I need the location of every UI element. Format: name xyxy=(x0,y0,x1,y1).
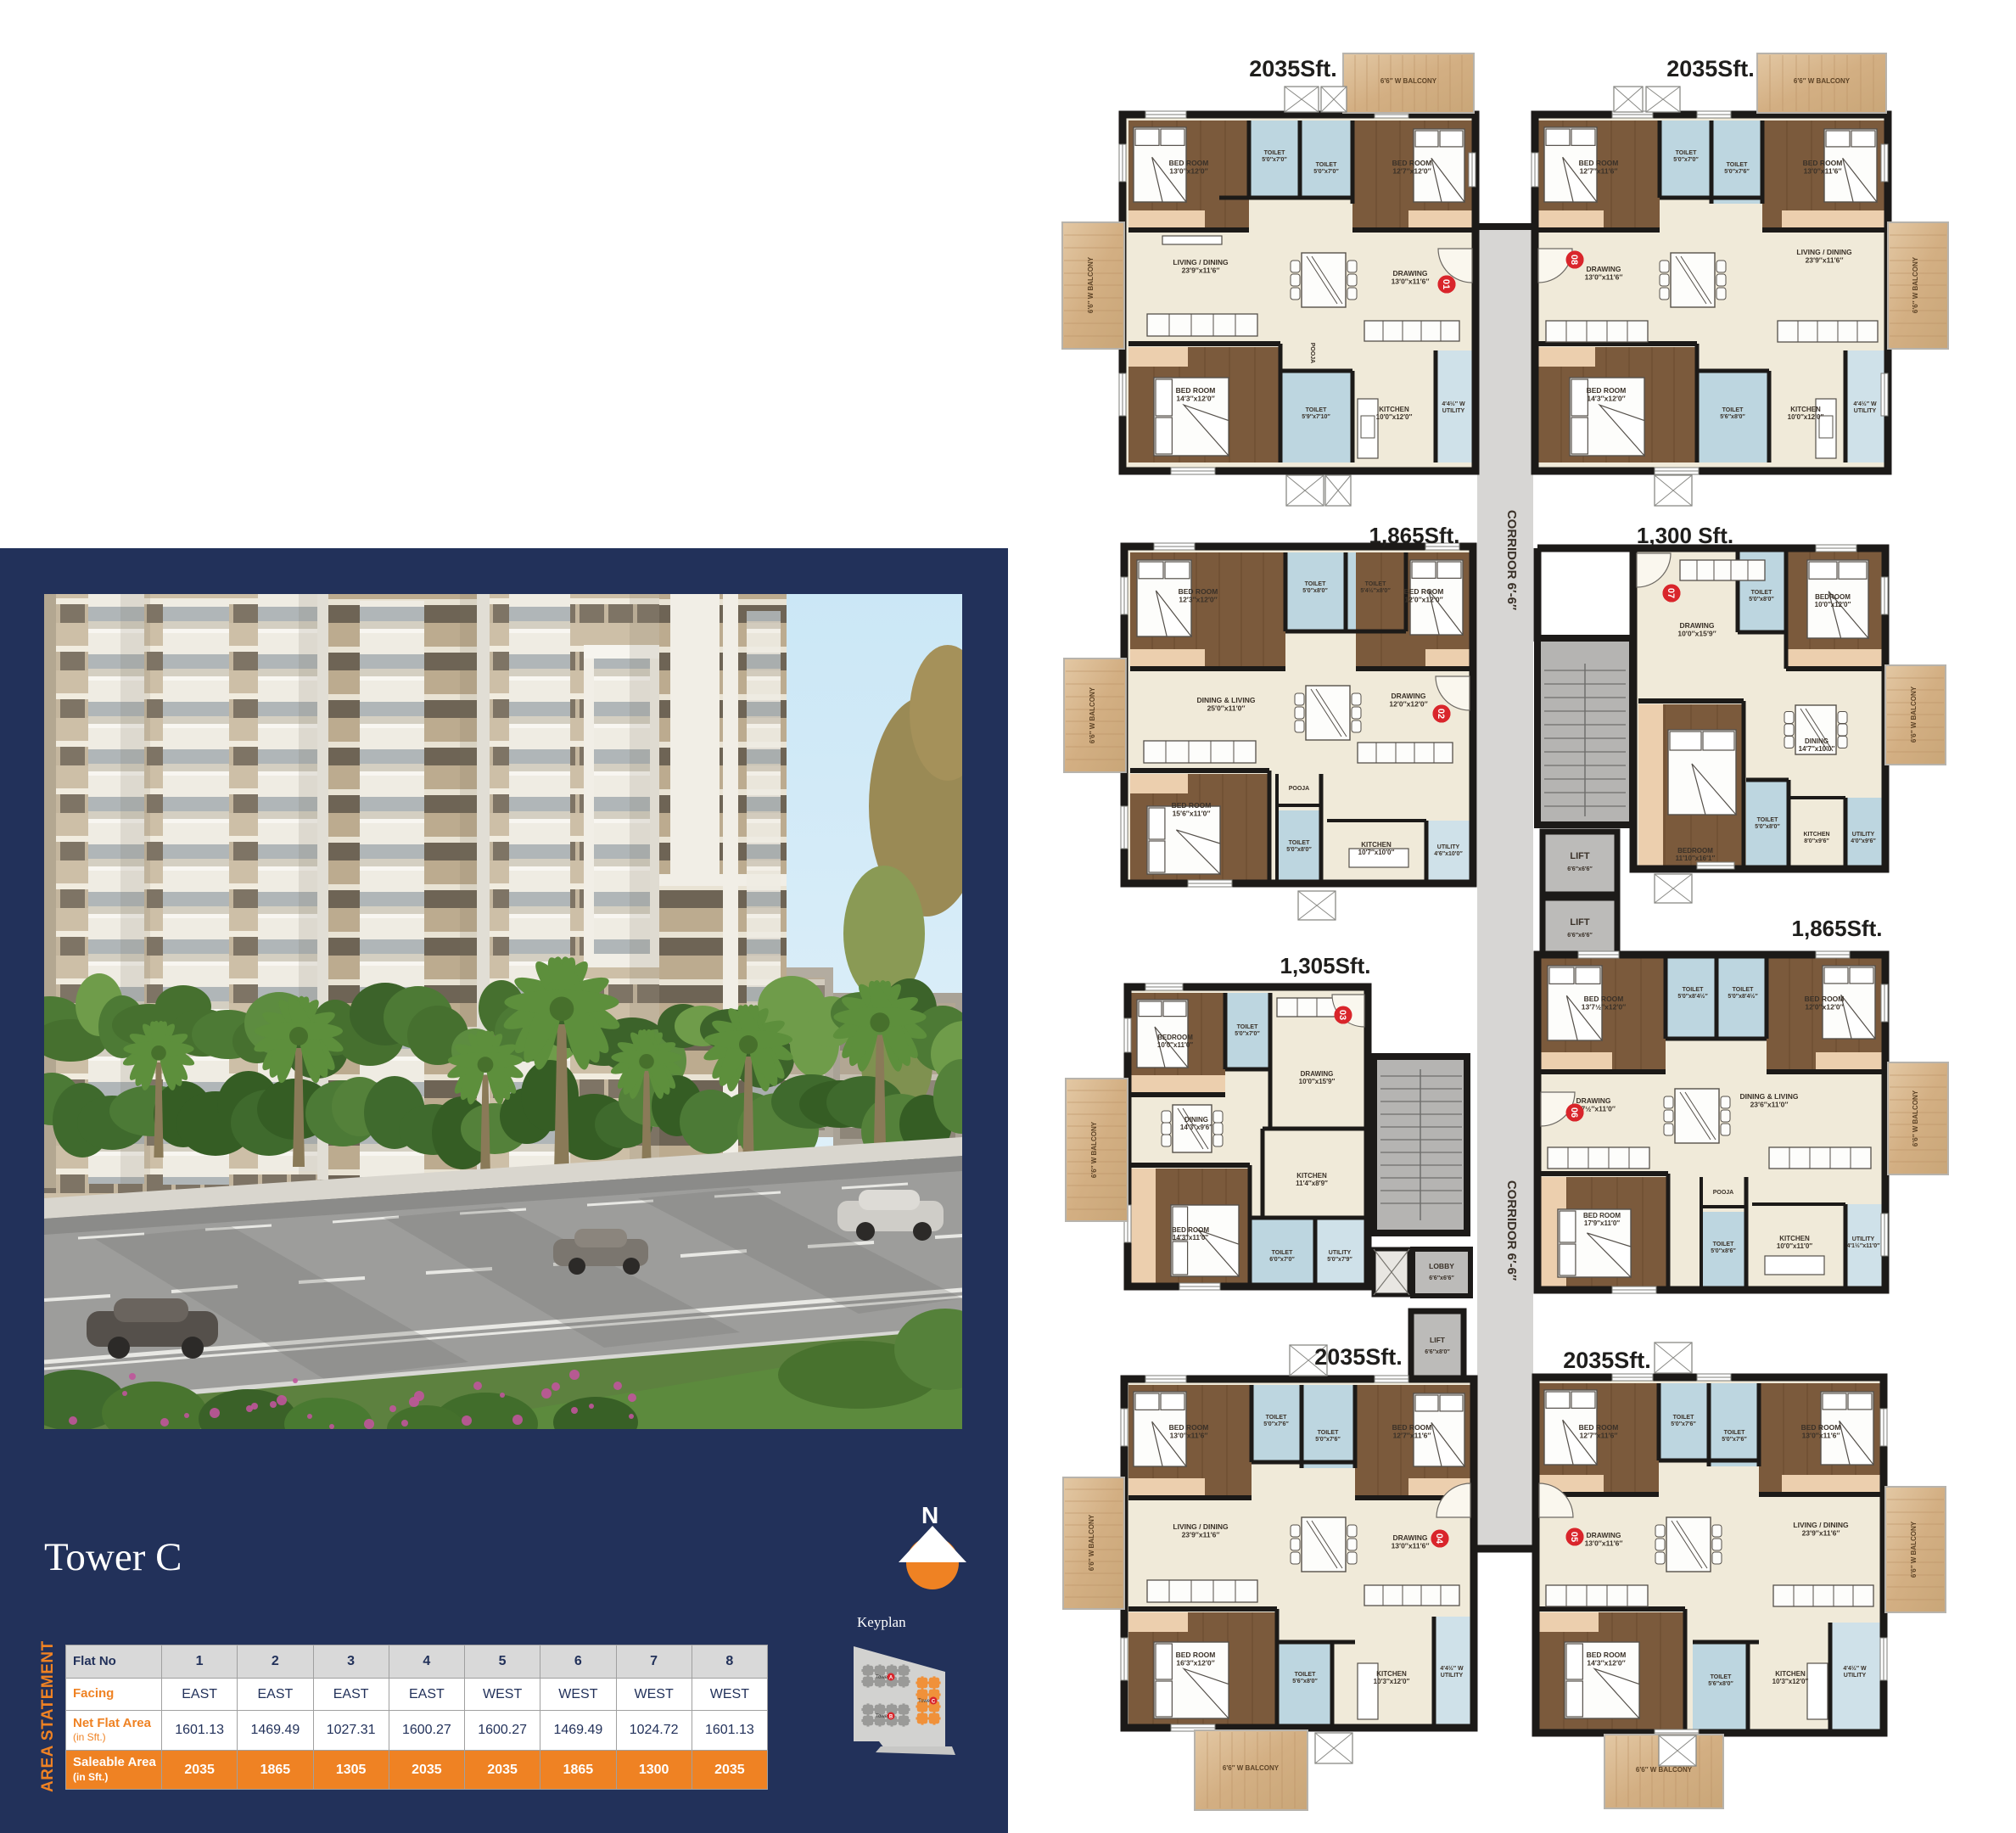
svg-text:BED ROOM13′0″x11′6″: BED ROOM13′0″x11′6″ xyxy=(1803,159,1843,176)
svg-text:BED ROOM12′0″x12′0″: BED ROOM12′0″x12′0″ xyxy=(1805,995,1845,1012)
svg-text:POOJA: POOJA xyxy=(1289,786,1310,792)
svg-text:TOILET5′6″x8′0″: TOILET5′6″x8′0″ xyxy=(1720,407,1745,420)
svg-text:KITCHEN10′3″x12′0″: KITCHEN10′3″x12′0″ xyxy=(1374,1670,1410,1685)
svg-text:1,300 Sft.: 1,300 Sft. xyxy=(1637,523,1733,548)
svg-text:BEDROOM10′0″x12′0″: BEDROOM10′0″x12′0″ xyxy=(1815,593,1851,608)
svg-text:BED ROOM12′7″x12′0″: BED ROOM12′7″x12′0″ xyxy=(1392,159,1432,176)
svg-text:LIFT: LIFT xyxy=(1430,1336,1446,1344)
svg-text:1,305Sft.: 1,305Sft. xyxy=(1280,953,1371,978)
svg-text:TOILET5′0″x8′0″: TOILET5′0″x8′0″ xyxy=(1302,581,1328,594)
svg-text:BEDROOM10′0″x11′0″: BEDROOM10′0″x11′0″ xyxy=(1157,1034,1193,1049)
svg-text:TOILET5′0″x7′6″: TOILET5′0″x7′6″ xyxy=(1315,1430,1341,1443)
svg-text:6′6″ W BALCONY: 6′6″ W BALCONY xyxy=(1089,687,1096,743)
svg-text:CORRIDOR 6′-6″: CORRIDOR 6′-6″ xyxy=(1504,1180,1519,1281)
svg-text:6′6″ W BALCONY: 6′6″ W BALCONY xyxy=(1912,256,1919,313)
svg-text:TOILET5′0″x7′6″: TOILET5′0″x7′6″ xyxy=(1263,1415,1289,1427)
svg-text:BED ROOM14′3″x11′0″: BED ROOM14′3″x11′0″ xyxy=(1172,1226,1209,1242)
svg-text:BED ROOM14′3″x12′0″: BED ROOM14′3″x12′0″ xyxy=(1176,386,1216,403)
svg-text:POOJA: POOJA xyxy=(1713,1190,1734,1196)
svg-text:UTILITY5′0″x7′9″: UTILITY5′0″x7′9″ xyxy=(1327,1250,1352,1263)
svg-text:BED ROOM14′3″x12′0″: BED ROOM14′3″x12′0″ xyxy=(1587,386,1627,403)
svg-text:TOILET5′0″x7′0″: TOILET5′0″x7′0″ xyxy=(1313,162,1339,175)
svg-text:2035Sft.: 2035Sft. xyxy=(1666,56,1755,81)
svg-text:B: B xyxy=(889,1715,893,1720)
svg-text:KITCHEN11′4″x8′9″: KITCHEN11′4″x8′9″ xyxy=(1296,1172,1328,1187)
svg-text:02: 02 xyxy=(1436,709,1446,719)
svg-text:TOILET6′0″x7′0″: TOILET6′0″x7′0″ xyxy=(1269,1250,1295,1263)
svg-text:TOILET5′0″x8′0″: TOILET5′0″x8′0″ xyxy=(1286,840,1312,853)
svg-text:BED ROOM12′7″x11′6″: BED ROOM12′7″x11′6″ xyxy=(1392,1423,1432,1440)
svg-text:TOILET5′0″x8′0″: TOILET5′0″x8′0″ xyxy=(1755,817,1780,830)
svg-text:TOILET5′0″x7′0″: TOILET5′0″x7′0″ xyxy=(1262,150,1287,163)
svg-text:05: 05 xyxy=(1569,1532,1579,1542)
svg-text:6′6″x6′6″: 6′6″x6′6″ xyxy=(1567,866,1593,872)
svg-text:06: 06 xyxy=(1569,1107,1579,1118)
svg-text:6′6″ W BALCONY: 6′6″ W BALCONY xyxy=(1380,77,1437,85)
svg-text:6′6″ W BALCONY: 6′6″ W BALCONY xyxy=(1910,686,1918,743)
svg-text:POOJA: POOJA xyxy=(1309,343,1315,364)
svg-text:BED ROOM13′0″x11′6″: BED ROOM13′0″x11′6″ xyxy=(1169,1423,1209,1440)
svg-text:6′6″x8′0″: 6′6″x8′0″ xyxy=(1425,1349,1450,1355)
svg-text:6′6″x6′6″: 6′6″x6′6″ xyxy=(1429,1275,1454,1281)
svg-text:6′6″ W BALCONY: 6′6″ W BALCONY xyxy=(1912,1090,1919,1146)
svg-text:03: 03 xyxy=(1337,1010,1347,1020)
svg-text:A: A xyxy=(889,1676,893,1681)
svg-text:BED ROOM14′3″x12′0″: BED ROOM14′3″x12′0″ xyxy=(1587,1651,1627,1668)
svg-text:TOILET5′0″x7′6″: TOILET5′0″x7′6″ xyxy=(1671,1415,1696,1427)
svg-text:6′6″ W BALCONY: 6′6″ W BALCONY xyxy=(1910,1521,1918,1578)
svg-text:TOILET5′0″x8′0″: TOILET5′0″x8′0″ xyxy=(1749,590,1774,603)
svg-text:TOILET5′0″x7′6″: TOILET5′0″x7′6″ xyxy=(1722,1430,1747,1443)
svg-text:DRAWING12′0″x12′0″: DRAWING12′0″x12′0″ xyxy=(1389,692,1427,709)
svg-text:C: C xyxy=(932,1700,936,1705)
svg-text:DRAWING13′0″x11′6″: DRAWING13′0″x11′6″ xyxy=(1392,269,1430,286)
svg-text:DRAWING10′0″x15′9″: DRAWING10′0″x15′9″ xyxy=(1299,1070,1336,1085)
svg-text:1,865Sft.: 1,865Sft. xyxy=(1792,916,1883,941)
svg-text:6′6″ W BALCONY: 6′6″ W BALCONY xyxy=(1090,1121,1098,1178)
svg-text:DRAWING13′0″x11′6″: DRAWING13′0″x11′6″ xyxy=(1392,1533,1430,1550)
svg-text:BED ROOM12′0″x12′0″: BED ROOM12′0″x12′0″ xyxy=(1404,587,1444,604)
svg-text:BED ROOM12′3″x12′0″: BED ROOM12′3″x12′0″ xyxy=(1179,587,1218,604)
svg-text:BED ROOM16′3″x12′0″: BED ROOM16′3″x12′0″ xyxy=(1176,1651,1216,1668)
svg-text:BEDROOM11′10″x16′1″: BEDROOM11′10″x16′1″ xyxy=(1676,847,1716,862)
svg-text:BED ROOM15′6″x11′0″: BED ROOM15′6″x11′0″ xyxy=(1172,801,1212,818)
svg-text:TOILET5′6″x8′0″: TOILET5′6″x8′0″ xyxy=(1292,1672,1318,1684)
svg-text:6′6″ W BALCONY: 6′6″ W BALCONY xyxy=(1088,1514,1095,1571)
svg-text:BED ROOM12′7″x11′6″: BED ROOM12′7″x11′6″ xyxy=(1579,159,1619,176)
svg-text:2035Sft.: 2035Sft. xyxy=(1563,1348,1651,1373)
svg-text:DINING14′3″x9′6″: DINING14′3″x9′6″ xyxy=(1180,1116,1212,1131)
svg-text:1,865Sft.: 1,865Sft. xyxy=(1369,523,1460,548)
svg-text:TOILET5′0″x7′0″: TOILET5′0″x7′0″ xyxy=(1673,150,1699,163)
svg-text:DRAWING10′0″x15′9″: DRAWING10′0″x15′9″ xyxy=(1677,621,1716,638)
svg-text:BED ROOM12′7″x11′6″: BED ROOM12′7″x11′6″ xyxy=(1579,1423,1619,1440)
svg-text:CORRIDOR 6′-6″: CORRIDOR 6′-6″ xyxy=(1504,510,1519,610)
svg-text:KITCHEN8′0″x9′6″: KITCHEN8′0″x9′6″ xyxy=(1803,832,1829,844)
svg-text:UTILITY4′0″x9′6″: UTILITY4′0″x9′6″ xyxy=(1851,832,1876,844)
svg-text:TOILET5′9″x7′10″: TOILET5′9″x7′10″ xyxy=(1302,407,1330,420)
svg-text:KITCHEN10′3″x12′0″: KITCHEN10′3″x12′0″ xyxy=(1772,1670,1809,1685)
svg-text:TOILET5′0″x7′6″: TOILET5′0″x7′6″ xyxy=(1724,162,1750,175)
svg-text:01: 01 xyxy=(1441,279,1451,289)
svg-text:6′6″ W BALCONY: 6′6″ W BALCONY xyxy=(1636,1766,1693,1774)
svg-text:07: 07 xyxy=(1666,588,1676,598)
svg-text:04: 04 xyxy=(1434,1533,1444,1544)
svg-text:TOILET5′0″x8′6″: TOILET5′0″x8′6″ xyxy=(1711,1242,1736,1254)
svg-text:TOILET5′0″x7′0″: TOILET5′0″x7′0″ xyxy=(1235,1024,1260,1037)
svg-text:BED ROOM13′0″x12′0″: BED ROOM13′0″x12′0″ xyxy=(1169,159,1209,176)
svg-text:6′6″ W BALCONY: 6′6″ W BALCONY xyxy=(1794,77,1851,85)
svg-text:KITCHEN10′0″x12′0″: KITCHEN10′0″x12′0″ xyxy=(1376,406,1413,421)
svg-text:2035Sft.: 2035Sft. xyxy=(1249,56,1337,81)
svg-text:UTILITY4′6″x10′0″: UTILITY4′6″x10′0″ xyxy=(1434,844,1463,857)
svg-text:TOILET5′6″x8′0″: TOILET5′6″x8′0″ xyxy=(1708,1674,1733,1687)
svg-text:KITCHEN10′0″x11′0″: KITCHEN10′0″x11′0″ xyxy=(1777,1235,1812,1250)
svg-text:DRAWING13′0″x11′6″: DRAWING13′0″x11′6″ xyxy=(1585,265,1623,282)
svg-text:KITCHEN10′0″x12′0″: KITCHEN10′0″x12′0″ xyxy=(1788,406,1824,421)
svg-text:LIFT: LIFT xyxy=(1570,917,1589,928)
svg-text:BED ROOM17′9″x11′0″: BED ROOM17′9″x11′0″ xyxy=(1583,1212,1621,1227)
svg-text:DRAWING13′0″x11′6″: DRAWING13′0″x11′6″ xyxy=(1585,1531,1623,1548)
svg-text:LOBBY: LOBBY xyxy=(1429,1262,1454,1270)
svg-text:BED ROOM13′7½″x12′0″: BED ROOM13′7½″x12′0″ xyxy=(1582,995,1626,1012)
svg-text:6′6″x6′6″: 6′6″x6′6″ xyxy=(1567,933,1593,939)
svg-text:2035Sft.: 2035Sft. xyxy=(1314,1344,1403,1370)
svg-text:08: 08 xyxy=(1569,255,1579,265)
svg-text:BED ROOM13′0″x11′6″: BED ROOM13′0″x11′6″ xyxy=(1801,1423,1841,1440)
svg-text:KITCHEN10′7″x10′0″: KITCHEN10′7″x10′0″ xyxy=(1358,841,1395,856)
svg-text:6′6″ W BALCONY: 6′6″ W BALCONY xyxy=(1223,1764,1280,1772)
svg-text:LIFT: LIFT xyxy=(1570,851,1589,861)
svg-text:6′6″ W BALCONY: 6′6″ W BALCONY xyxy=(1087,256,1095,313)
